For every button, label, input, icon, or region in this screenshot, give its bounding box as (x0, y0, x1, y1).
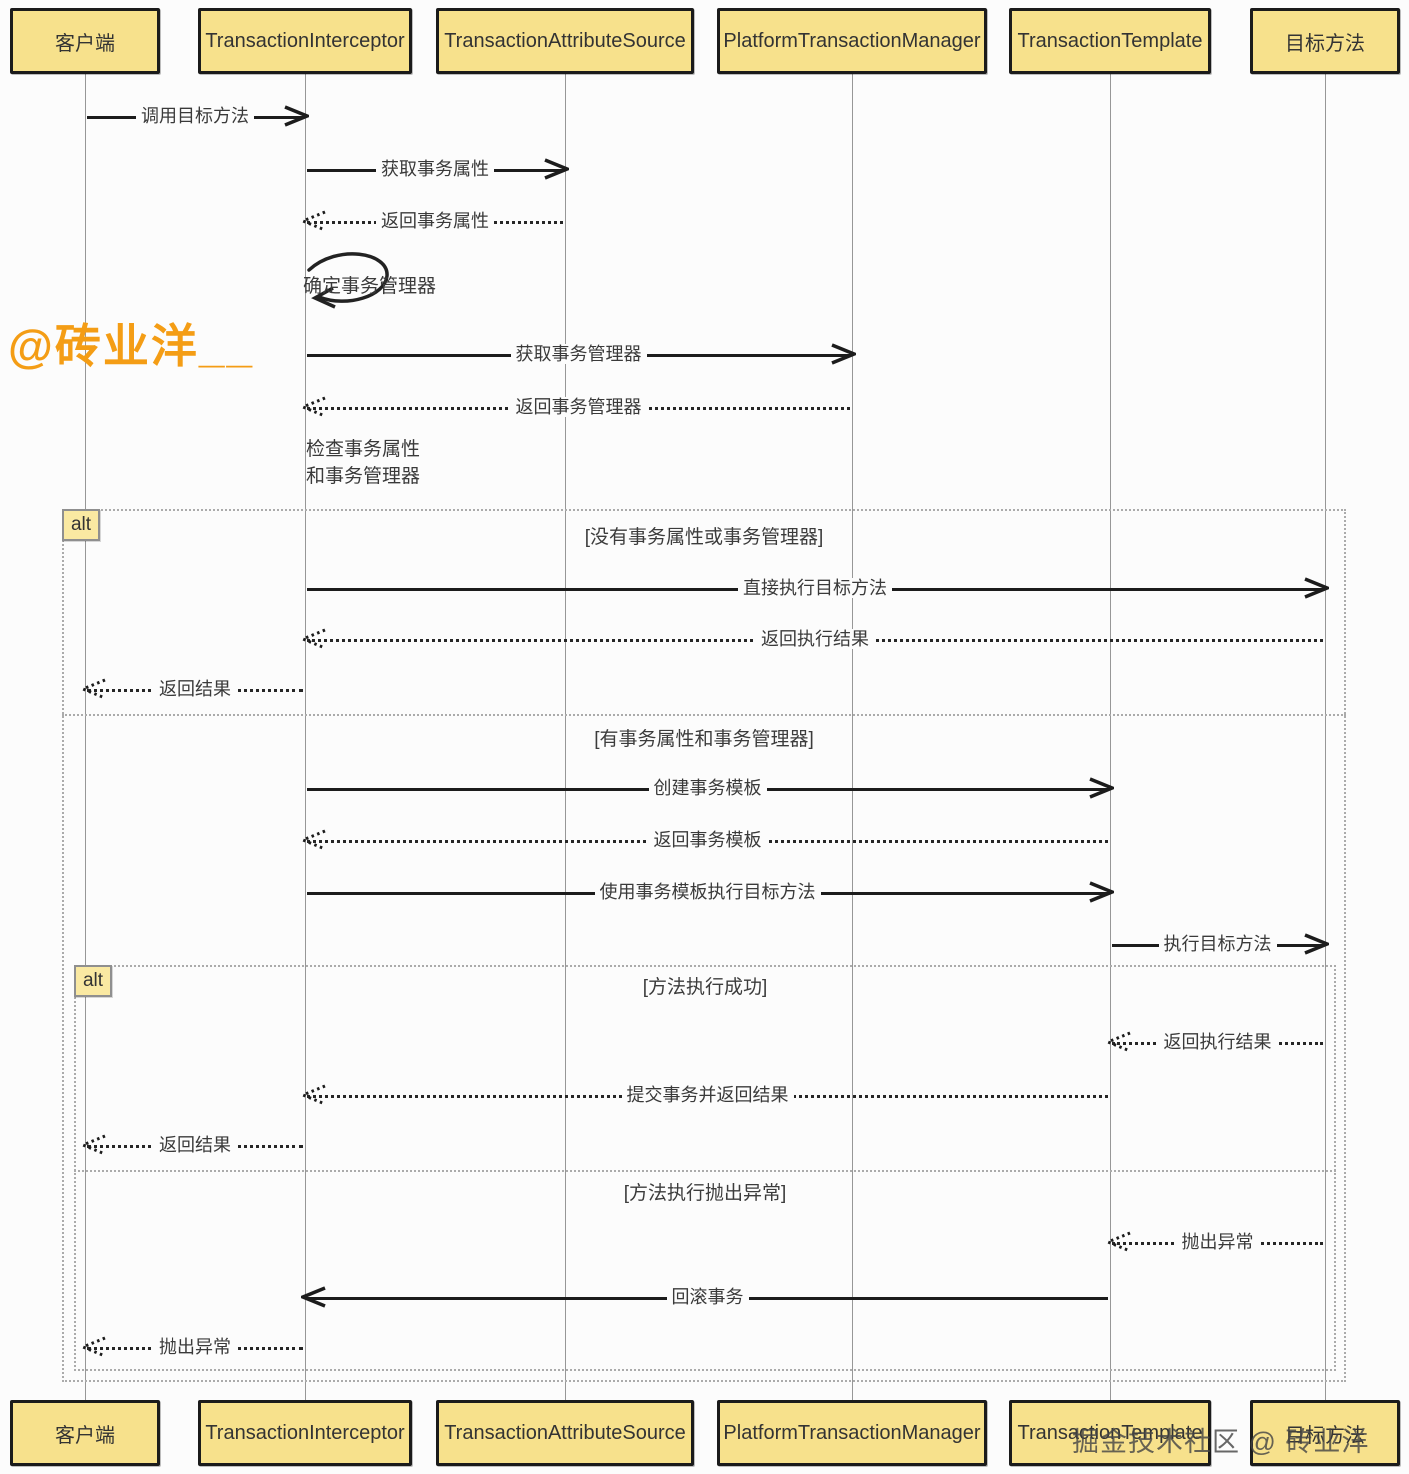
message-label: 获取事务属性 (305, 157, 565, 181)
participant-client-top: 客户端 (10, 8, 160, 74)
participant-transaction-attribute-source-top: TransactionAttributeSource (436, 8, 694, 74)
message-label: 执行目标方法 (1110, 932, 1325, 956)
self-message-label: 确定事务管理器 (303, 271, 436, 298)
message-label: 创建事务模板 (305, 776, 1110, 800)
participant-transaction-interceptor-bottom: TransactionInterceptor (198, 1400, 412, 1466)
alt-inner-divider (74, 1170, 1336, 1172)
sequence-diagram: alt [没有事务属性或事务管理器] [有事务属性和事务管理器] alt [方法… (0, 0, 1409, 1474)
alt-outer-divider (62, 714, 1346, 716)
author-watermark: @砖业洋__ (8, 310, 254, 376)
message-label: 获取事务管理器 (305, 342, 852, 366)
message-label: 返回事务属性 (305, 209, 565, 233)
message-label: 抛出异常 (85, 1335, 305, 1359)
participant-transaction-attribute-source-bottom: TransactionAttributeSource (436, 1400, 694, 1466)
footer-watermark: 掘金技术社区 @ 砖业洋 (1072, 1420, 1369, 1459)
participant-transaction-template-top: TransactionTemplate (1009, 8, 1211, 74)
message-label: 提交事务并返回结果 (305, 1083, 1110, 1107)
participant-target-method-top: 目标方法 (1250, 8, 1400, 74)
message-label: 返回执行结果 (305, 627, 1325, 651)
participant-platform-transaction-manager-bottom: PlatformTransactionManager (717, 1400, 987, 1466)
note-check-attribute-and-manager: 检查事务属性 和事务管理器 (306, 436, 420, 490)
alt-operator-tag-outer: alt (62, 509, 100, 541)
participant-platform-transaction-manager-top: PlatformTransactionManager (717, 8, 987, 74)
message-label: 返回结果 (85, 1133, 305, 1157)
alt-operator-tag-inner: alt (74, 965, 112, 997)
message-label: 直接执行目标方法 (305, 576, 1325, 600)
alt-frame-inner (74, 965, 1336, 1371)
message-label: 返回结果 (85, 677, 305, 701)
message-label: 返回事务模板 (305, 828, 1110, 852)
participant-transaction-interceptor-top: TransactionInterceptor (198, 8, 412, 74)
participant-client-bottom: 客户端 (10, 1400, 160, 1466)
guard-method-throws: [方法执行抛出异常] (74, 1178, 1336, 1205)
guard-no-attribute-or-manager: [没有事务属性或事务管理器] (62, 522, 1346, 549)
guard-has-attribute-and-manager: [有事务属性和事务管理器] (62, 724, 1346, 751)
message-label: 返回事务管理器 (305, 395, 852, 419)
message-label: 使用事务模板执行目标方法 (305, 880, 1110, 904)
message-label: 调用目标方法 (85, 104, 305, 128)
message-label: 抛出异常 (1110, 1230, 1325, 1254)
message-label: 回滚事务 (305, 1285, 1110, 1309)
message-label: 返回执行结果 (1110, 1030, 1325, 1054)
guard-method-success: [方法执行成功] (74, 972, 1336, 999)
